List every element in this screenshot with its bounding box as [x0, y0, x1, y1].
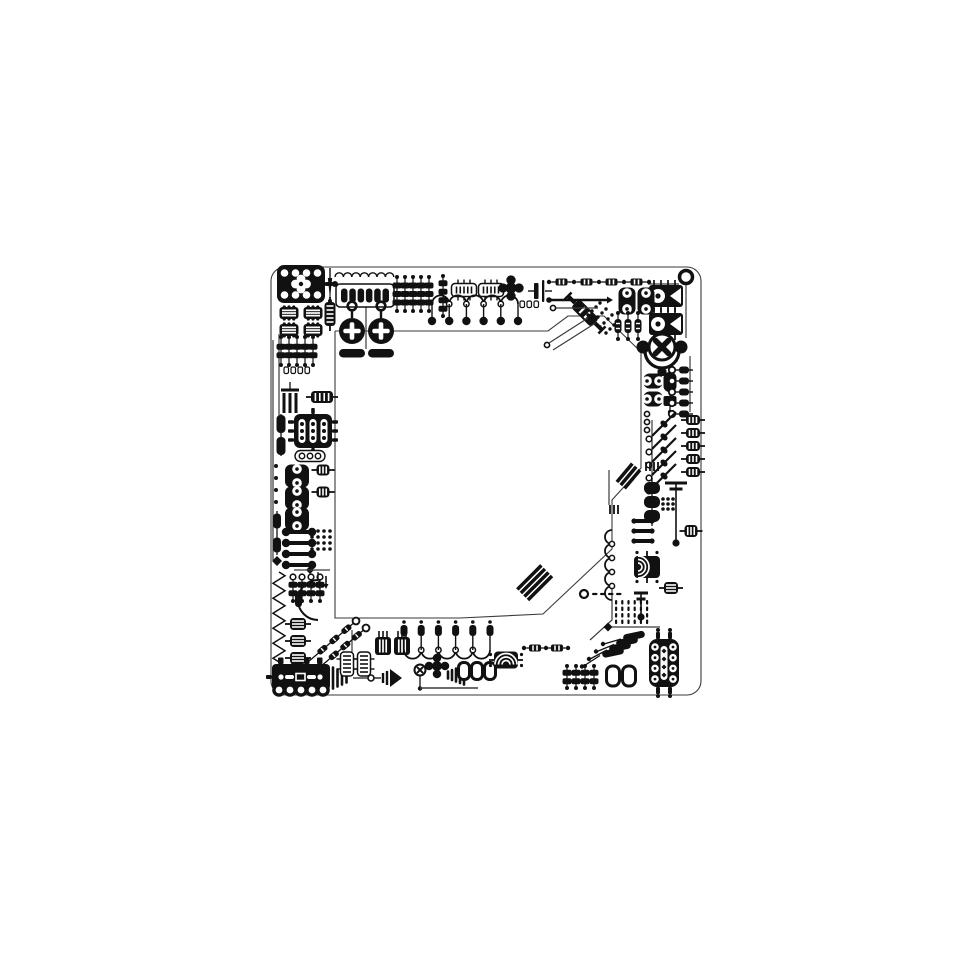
cone-speaker: [368, 669, 402, 687]
double-ring-right: [642, 374, 664, 407]
left-edge-caps: [273, 511, 281, 555]
double-ring-left-col: [285, 464, 309, 531]
dash-grid: [615, 600, 648, 624]
scallop-trace: [335, 273, 394, 277]
ic-left: [288, 408, 338, 454]
dot-cluster-top: [498, 275, 523, 300]
capsules-left: [277, 414, 286, 456]
dots-left: [274, 464, 278, 504]
bead-rows-left: [277, 335, 318, 367]
wave-trace-bottom: [401, 620, 494, 658]
inner-outline: [335, 316, 641, 618]
dip-v-pair: [337, 652, 375, 676]
arc-left: [295, 572, 318, 620]
striped-cap-grid: [280, 305, 323, 337]
bead-columns-top: [393, 275, 434, 313]
triple-ring-left: [295, 451, 325, 462]
via-c: [580, 590, 588, 598]
slot-component: [680, 525, 703, 537]
resistor-chain-top: [547, 279, 651, 286]
dash-row: [592, 593, 622, 595]
antenna-cap: [665, 482, 687, 547]
double-ring-a: [619, 288, 636, 315]
corner-via: [680, 271, 693, 284]
circuit-board-frame-svg: [0, 0, 960, 960]
ribbed-caps-left-col: [285, 618, 311, 664]
diag-trace-a: [549, 318, 588, 343]
micro-pads-left: [284, 367, 310, 374]
cable-stripes-b: [517, 565, 552, 600]
ribbed-small-right: [659, 582, 683, 594]
keyhole-pad-left: [339, 302, 365, 358]
ribbed-left-mid: [312, 465, 335, 498]
trace-10: [590, 584, 612, 640]
cable-stripes-a: [617, 464, 640, 489]
via-column: [644, 411, 649, 432]
ring-rects-pair: [607, 666, 636, 686]
pin-pair-rows: [631, 518, 654, 543]
via-b: [550, 305, 555, 310]
diamond-pin: [604, 623, 613, 632]
keyhole-pad-right: [368, 302, 394, 358]
circuit-frame-illustration: [0, 0, 960, 960]
x-via: [415, 665, 426, 691]
micro-pads-top: [520, 301, 539, 308]
resistor-chain-bottom: [522, 645, 570, 652]
triple-bars: [281, 382, 299, 413]
via-a: [544, 342, 549, 347]
pin-comb-mid: [610, 505, 618, 514]
ic-bottom-right: [649, 628, 679, 698]
ribbed-left-top: [306, 391, 338, 403]
ring-wave-right: [605, 530, 615, 600]
double-ring-b: [638, 288, 655, 315]
dot-grid-right: [661, 497, 675, 511]
fan-resistors: [580, 630, 646, 668]
dot-cluster-bottom: [425, 654, 450, 679]
coil-inductor: [325, 297, 336, 331]
spring-coil: [273, 572, 285, 662]
arc-component-right: [634, 551, 660, 583]
resistor-triple: [615, 311, 642, 341]
